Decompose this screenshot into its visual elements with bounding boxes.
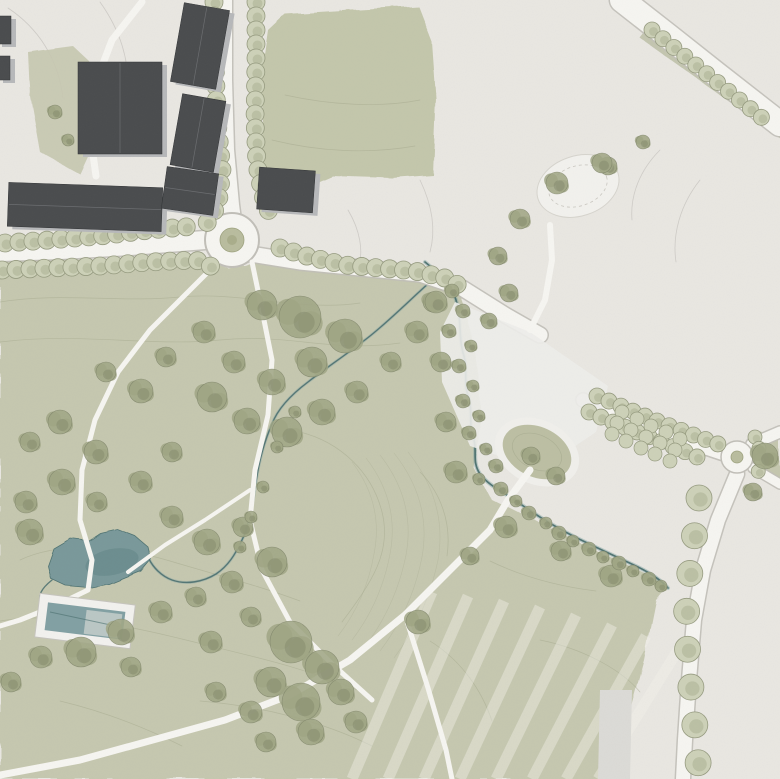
paper-grain-texture [0, 0, 780, 779]
site-plan-map [0, 0, 780, 779]
masterplan-stage [0, 0, 780, 779]
